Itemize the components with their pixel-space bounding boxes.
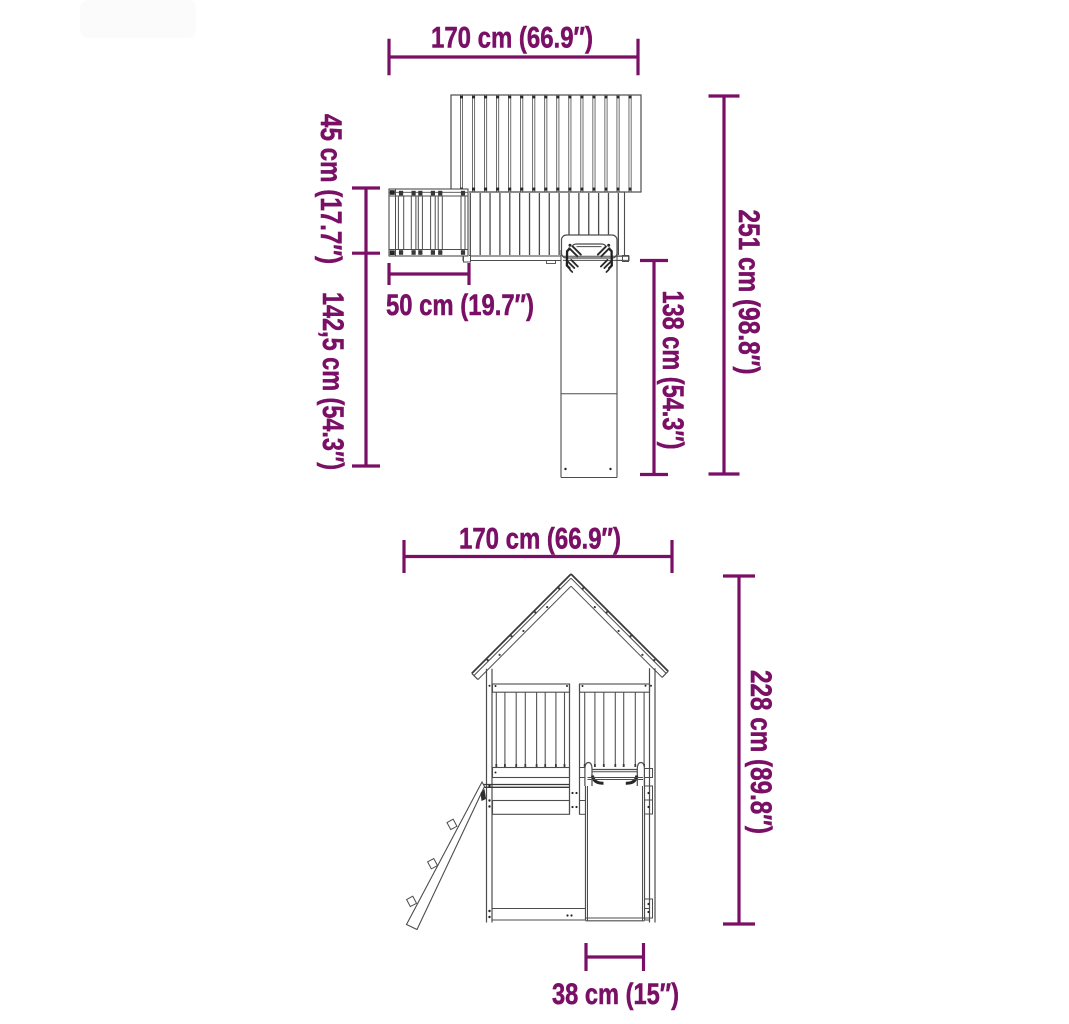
svg-text:45 cm (17.7″): 45 cm (17.7″) <box>314 114 347 264</box>
svg-text:228 cm (89.8″): 228 cm (89.8″) <box>744 670 777 834</box>
svg-text:170 cm (66.9″): 170 cm (66.9″) <box>459 523 621 556</box>
svg-text:142,5 cm (54.3″): 142,5 cm (54.3″) <box>316 292 349 470</box>
svg-text:50 cm (19.7″): 50 cm (19.7″) <box>386 289 534 322</box>
svg-text:138 cm (54.3″): 138 cm (54.3″) <box>656 291 689 450</box>
svg-text:38 cm (15″): 38 cm (15″) <box>552 978 679 1011</box>
svg-text:251 cm (98.8″): 251 cm (98.8″) <box>732 210 765 375</box>
svg-text:170 cm (66.9″): 170 cm (66.9″) <box>431 22 593 55</box>
